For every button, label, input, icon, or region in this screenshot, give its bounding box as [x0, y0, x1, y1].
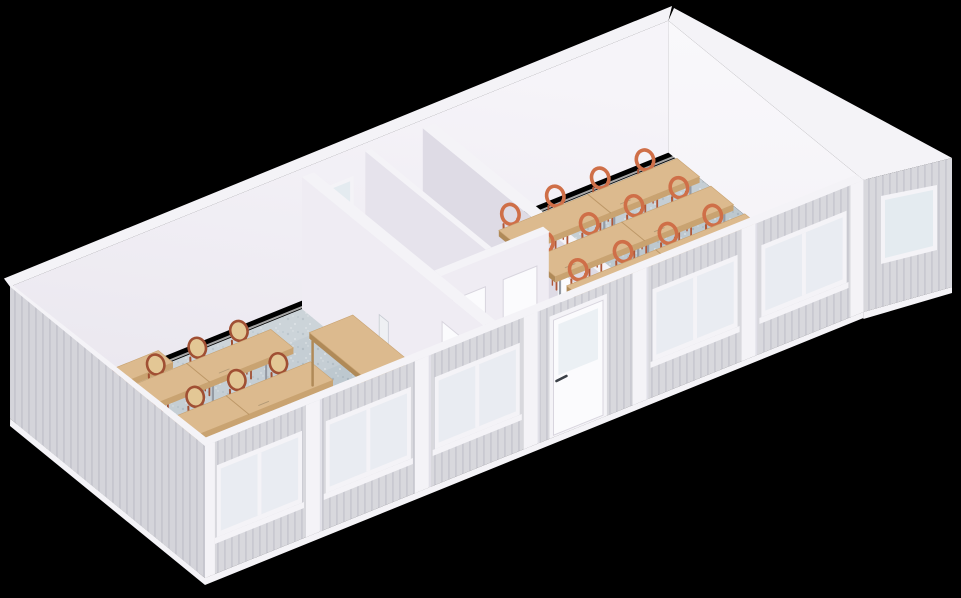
window-mullion — [475, 364, 479, 428]
facade-pillar — [742, 223, 758, 361]
facade-pillar-shade — [320, 399, 322, 532]
modular-classroom-cutaway-render — [0, 0, 961, 598]
window-mullion — [802, 232, 806, 296]
window-mullion — [366, 408, 370, 472]
corner-pillar — [205, 443, 213, 578]
facade-pillar-shade — [429, 355, 431, 488]
facade-pillar — [415, 355, 431, 493]
facade-pillar-shade — [647, 267, 649, 400]
facade-pillar — [306, 399, 322, 537]
facade-pillar — [633, 267, 649, 405]
facade-pillar-shade — [755, 223, 757, 356]
window-mullion — [258, 452, 262, 516]
entrance-door — [550, 294, 607, 439]
facade-pillar — [524, 311, 540, 449]
window-mullion — [693, 276, 697, 340]
window-glass — [885, 190, 933, 258]
render-viewport — [0, 0, 961, 598]
facade-pillar-shade — [538, 311, 540, 444]
